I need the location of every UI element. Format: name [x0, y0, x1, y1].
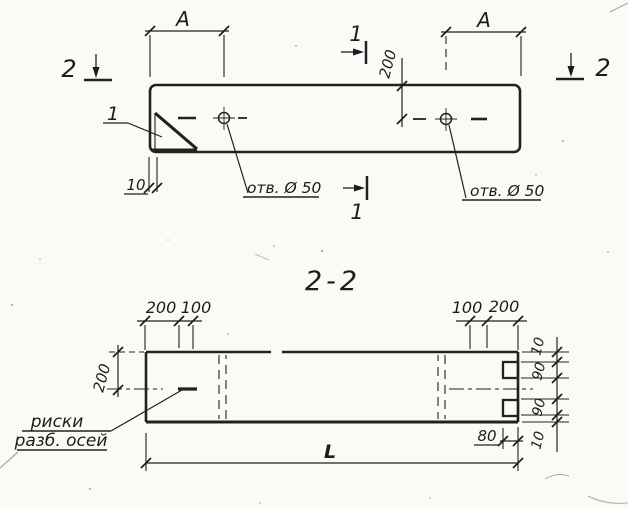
scan-speckles [0, 3, 628, 504]
dim-right-90-upper: 90 [529, 361, 549, 382]
dims-top-right: 100 200 [452, 297, 527, 350]
hole-label-left: отв. Ø 50 [227, 124, 321, 197]
technical-drawing: 1 отв. Ø 50 [0, 0, 628, 508]
dim-a-right-text: A [475, 8, 491, 32]
beam-outline [150, 85, 520, 152]
dim-200-plan: 200 [375, 48, 407, 127]
section-marker-1-bottom: 1 [343, 176, 367, 224]
section-1-bottom-label: 1 [350, 200, 363, 224]
break-lines-right [438, 355, 445, 419]
hole-label-left-text: отв. Ø 50 [247, 179, 321, 197]
section-marker-1-top: 1 [341, 22, 366, 64]
plan-view: 1 отв. Ø 50 [61, 7, 610, 224]
dim-100-top-right: 100 [452, 298, 483, 317]
dim-80: 80 [474, 427, 523, 449]
section-marker-2-left: 2 [61, 54, 112, 83]
dim-length-text: L [324, 441, 336, 463]
dim-right-10-top: 10 [528, 336, 548, 357]
dims-top-left: 200 100 [137, 298, 211, 350]
dim-right-10-bottom: 10 [528, 430, 548, 451]
dim-length-L: L [141, 427, 523, 471]
section-marker-2-right: 2 [556, 53, 611, 82]
axis-note-line2: разб. осей [14, 431, 108, 451]
section-2-left-label: 2 [61, 55, 76, 83]
drawing-sheet: 1 отв. Ø 50 [0, 0, 628, 508]
section-1-top-label: 1 [349, 22, 362, 46]
dim-80-text: 80 [477, 427, 496, 445]
dim-200-top-left: 200 [146, 298, 177, 317]
section-beam-outline [146, 352, 518, 422]
section-2-right-label: 2 [595, 54, 610, 82]
hole-label-right: отв. Ø 50 [449, 125, 544, 200]
dim-a-right: A [441, 8, 526, 76]
axis-note-line1: риски [30, 412, 84, 432]
break-lines-left [219, 355, 226, 419]
dim-10-plan: 10 [124, 157, 162, 194]
section-title: 2-2 [305, 266, 361, 297]
hole-label-right-text: отв. Ø 50 [470, 182, 544, 200]
section-2-2-view: 2-2 риски разб. осей [14, 266, 569, 471]
detail-callout-label: 1 [107, 103, 119, 125]
hole-left [178, 107, 247, 130]
dim-200-plan-text: 200 [375, 48, 400, 80]
dim-a-left: A [145, 7, 229, 77]
dim-200-top-right: 200 [489, 297, 520, 316]
dim-10-plan-text: 10 [126, 176, 145, 194]
dim-a-left-text: A [174, 7, 190, 31]
detail-callout-1: 1 [103, 103, 162, 137]
dims-right-chain: 10 90 90 10 [521, 336, 569, 452]
dim-100-top-left: 100 [181, 298, 212, 317]
